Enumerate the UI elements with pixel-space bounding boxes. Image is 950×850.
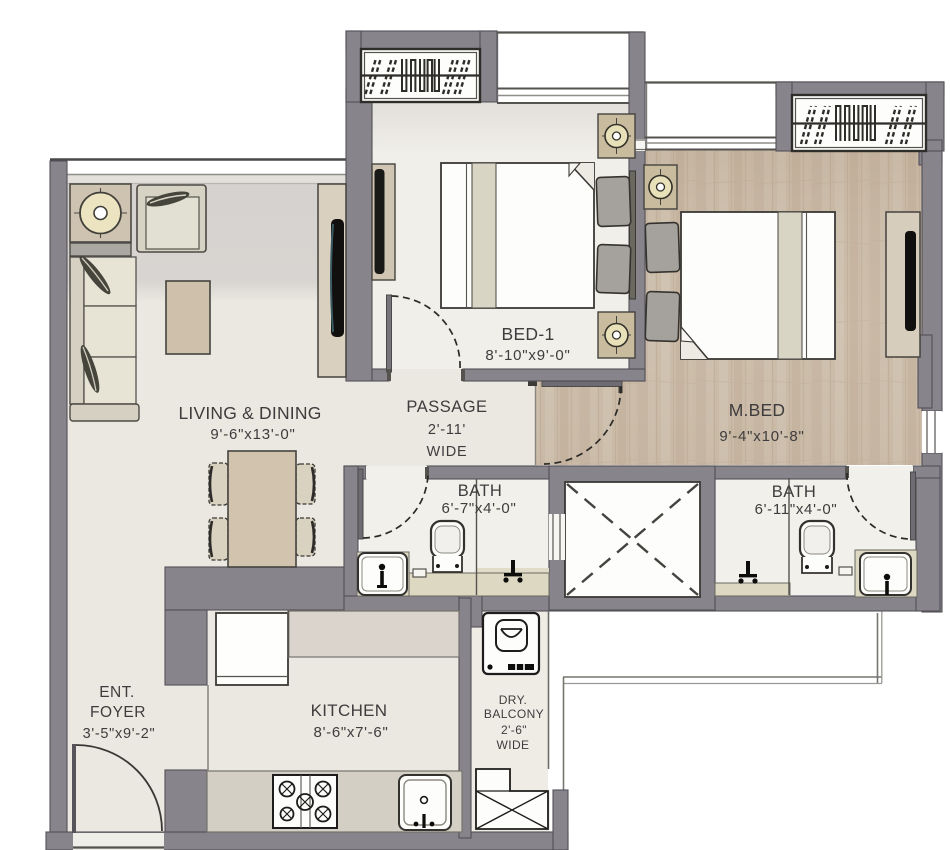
svg-text:BED-1: BED-1	[501, 324, 554, 344]
svg-text:3'-5"x9'-2": 3'-5"x9'-2"	[83, 726, 156, 742]
svg-text:6'-11"x4'-0": 6'-11"x4'-0"	[755, 501, 838, 518]
svg-text:BALCONY: BALCONY	[484, 707, 544, 721]
svg-text:8'-6"x7'-6": 8'-6"x7'-6"	[314, 724, 389, 741]
svg-text:WIDE: WIDE	[426, 444, 467, 460]
svg-text:2'-11': 2'-11'	[428, 422, 466, 438]
svg-text:WIDE: WIDE	[497, 738, 530, 752]
svg-text:2'-6": 2'-6"	[501, 723, 527, 737]
svg-text:LIVING & DINING: LIVING & DINING	[178, 403, 321, 423]
svg-text:KITCHEN: KITCHEN	[311, 701, 388, 720]
svg-text:9'-4"x10'-8": 9'-4"x10'-8"	[719, 428, 804, 445]
svg-text:BATH: BATH	[772, 483, 816, 501]
svg-text:ENT.: ENT.	[99, 684, 135, 701]
svg-text:PASSAGE: PASSAGE	[406, 398, 487, 416]
svg-text:9'-6"x13'-0": 9'-6"x13'-0"	[210, 426, 295, 443]
svg-text:FOYER: FOYER	[90, 704, 146, 721]
svg-text:DRY.: DRY.	[499, 693, 528, 707]
svg-text:6'-7"x4'-0": 6'-7"x4'-0"	[442, 500, 517, 517]
svg-text:BATH: BATH	[458, 482, 502, 500]
svg-text:M.BED: M.BED	[729, 400, 785, 420]
svg-text:8'-10"x9'-0": 8'-10"x9'-0"	[485, 347, 570, 364]
